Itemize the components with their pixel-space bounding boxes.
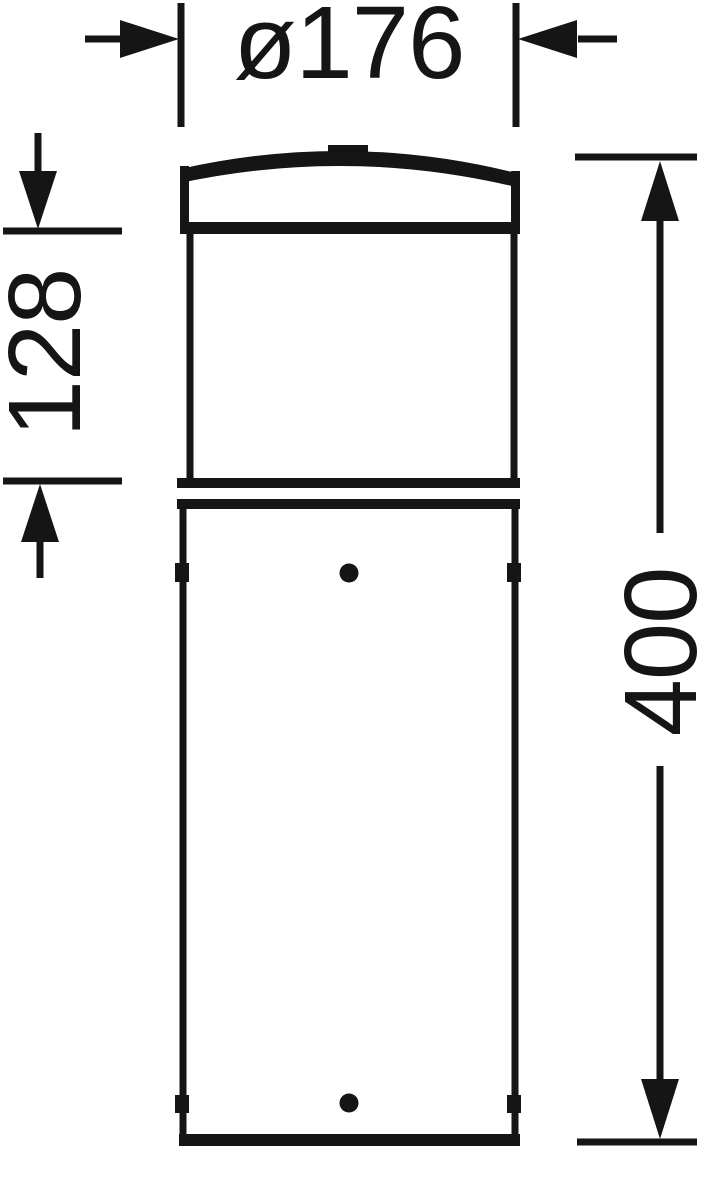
screw-dot-upper: [340, 564, 359, 583]
collar-upper-line: [177, 478, 520, 488]
seam-mark-upper-right: [507, 563, 521, 582]
upper-height-dimension-label: 128: [0, 269, 102, 438]
upper-height-arrowhead-bottom-icon: [21, 484, 59, 542]
collar-lower-line: [177, 499, 520, 509]
bollard-collar: [177, 478, 520, 509]
diameter-dimension-label: ø176: [234, 0, 465, 100]
cap-dome-top: [180, 151, 516, 187]
total-height-dimension-label: 400: [603, 568, 716, 737]
total-height-arrowhead-top-icon: [641, 161, 679, 221]
dimension-drawing: ø176 128 400: [0, 0, 716, 1200]
post-bottom-edge: [179, 1134, 520, 1146]
drawing-canvas: ø176 128 400: [0, 0, 716, 1200]
bollard-diffuser-section: [190, 232, 514, 480]
diameter-dimension: ø176: [85, 0, 617, 127]
seam-mark-lower-right: [507, 1095, 521, 1113]
total-height-dimension: 400: [575, 157, 716, 1142]
seam-mark-lower-left: [175, 1095, 189, 1113]
bollard-cap: [180, 145, 520, 234]
cap-bottom-edge: [180, 222, 520, 234]
bollard-post-body: [175, 509, 521, 1146]
diameter-arrowhead-left-icon: [120, 20, 179, 58]
screw-dot-lower: [340, 1094, 359, 1113]
total-height-arrowhead-bottom-icon: [641, 1079, 679, 1139]
seam-mark-upper-left: [175, 563, 189, 582]
bollard-outline: [175, 145, 521, 1146]
upper-height-arrowhead-top-icon: [19, 171, 57, 229]
upper-section-height-dimension: 128: [0, 133, 122, 578]
diameter-arrowhead-right-icon: [518, 20, 577, 58]
